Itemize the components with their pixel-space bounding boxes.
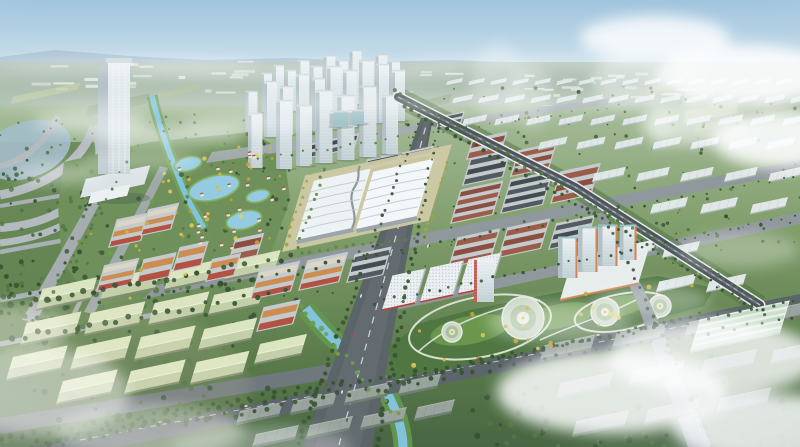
aerial-masterplan-rendering bbox=[0, 0, 800, 447]
scene-canvas bbox=[0, 0, 800, 447]
vignette bbox=[0, 0, 800, 447]
